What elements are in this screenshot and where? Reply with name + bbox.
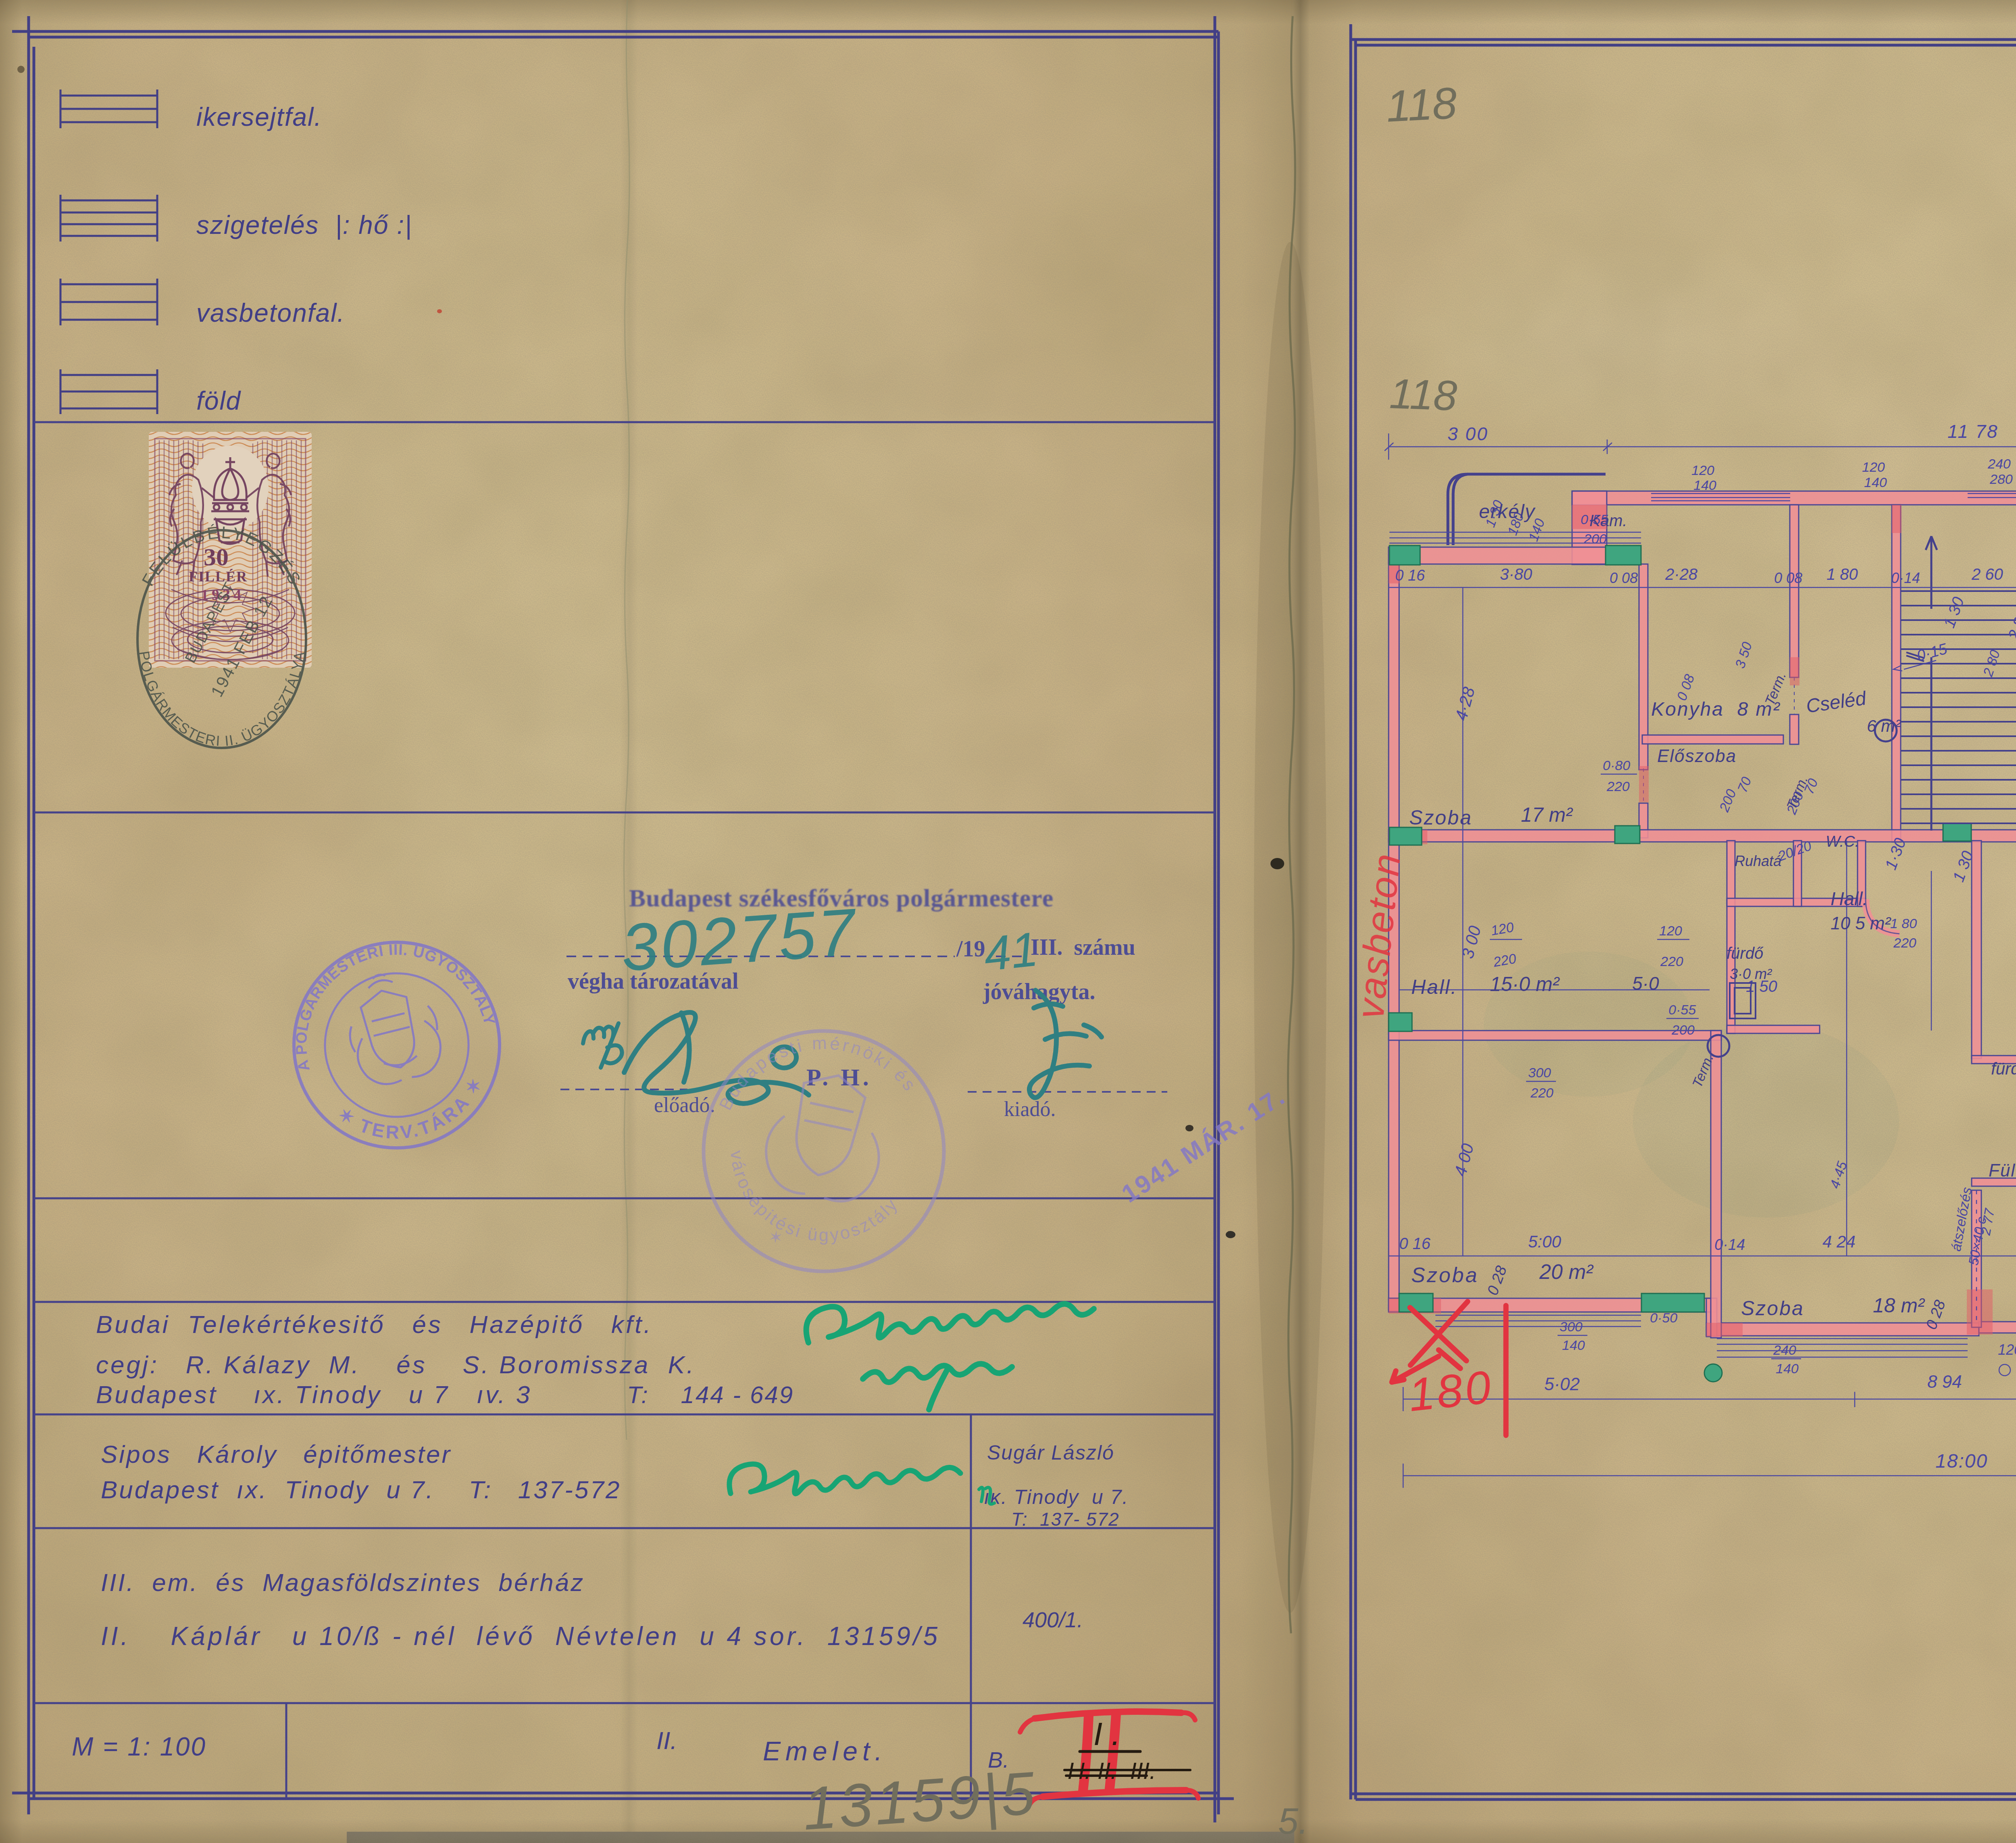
svg-text:Sugár László: Sugár László	[987, 1441, 1114, 1464]
svg-text:300: 300	[1560, 1319, 1583, 1334]
svg-text:M = 1: 100: M = 1: 100	[72, 1732, 206, 1761]
svg-text:140: 140	[1776, 1361, 1799, 1376]
svg-text:4 24: 4 24	[1822, 1232, 1856, 1251]
svg-text:140: 140	[1693, 477, 1716, 493]
svg-text:Szoba: Szoba	[1741, 1297, 1804, 1320]
svg-text:0 08: 0 08	[1610, 570, 1638, 586]
svg-text:kiadó.: kiadó.	[1004, 1097, 1056, 1120]
svg-text:0·55: 0·55	[1668, 1002, 1696, 1017]
svg-text:Szoba: Szoba	[1409, 806, 1472, 829]
svg-text:Sipos Károly épitőmester: Sipos Károly épitőmester	[101, 1440, 452, 1468]
svg-text:120: 120	[1691, 462, 1714, 478]
svg-text:200: 200	[1583, 531, 1607, 546]
svg-text:180: 180	[1406, 1361, 1495, 1421]
svg-text:300: 300	[1528, 1065, 1551, 1080]
svg-text:II.: II.	[656, 1726, 677, 1754]
svg-text:118: 118	[1385, 78, 1458, 131]
svg-text:II. Káplár u 10/ß - nél: II. Káplár u 10/ß - nél lévő Névtelen u …	[101, 1622, 940, 1651]
svg-text:120: 120	[1659, 923, 1682, 938]
svg-text:18:00: 18:00	[1935, 1450, 1988, 1472]
svg-text:280: 280	[1989, 471, 2013, 487]
svg-text:III. számu: III. számu	[1031, 935, 1135, 960]
svg-text:I .: I .	[1093, 1716, 1120, 1752]
svg-text:fürdő: fürdő	[1727, 944, 1764, 962]
svg-text:240: 240	[1987, 456, 2011, 471]
svg-text:fürdő: fürdő	[1991, 1059, 2016, 1078]
svg-text:III. em. és Magasföldszinte: III. em. és Magasföldszintes bérház	[101, 1568, 585, 1596]
svg-text:220: 220	[1893, 935, 1916, 950]
svg-text:200: 200	[1671, 1022, 1695, 1037]
svg-text:5·0: 5·0	[1632, 973, 1659, 994]
svg-text:erkély: erkély	[1479, 501, 1536, 522]
svg-text:5:00: 5:00	[1528, 1232, 1561, 1251]
svg-text:Budai Telekértékesitő és: Budai Telekértékesitő és Hazépitő kft.	[96, 1310, 653, 1338]
svg-text:140: 140	[1864, 475, 1887, 490]
svg-text:0 16: 0 16	[1395, 567, 1425, 584]
svg-text:3·80: 3·80	[1500, 565, 1532, 583]
svg-text:120: 120	[1998, 1341, 2016, 1358]
svg-text:41: 41	[981, 922, 1041, 981]
svg-text:ıĸ. Tinody u 7.: ıĸ. Tinody u 7.	[984, 1486, 1129, 1508]
svg-text:2·28: 2·28	[1665, 565, 1698, 583]
svg-text:Emelet.: Emelet.	[763, 1736, 887, 1766]
svg-text:5.: 5.	[1278, 1801, 1308, 1841]
svg-text:✶: ✶	[768, 1227, 784, 1247]
svg-text:0·14: 0·14	[1891, 570, 1920, 586]
svg-text:Előszoba: Előszoba	[1657, 746, 1737, 766]
svg-text:0 08: 0 08	[1774, 570, 1802, 586]
svg-text:10 5 m²: 10 5 m²	[1831, 913, 1891, 933]
svg-text:240: 240	[1773, 1342, 1796, 1358]
svg-text:5·02: 5·02	[1544, 1374, 1580, 1394]
svg-text:előadó.: előadó.	[654, 1093, 715, 1116]
svg-text:20 m²: 20 m²	[1539, 1260, 1594, 1283]
svg-text:120: 120	[1862, 459, 1885, 475]
svg-text:szigetelés |: hő :|: szigetelés |: hő :|	[196, 210, 412, 240]
svg-text:vasbetonfal.: vasbetonfal.	[196, 298, 345, 327]
svg-text:11 78: 11 78	[1947, 421, 1999, 442]
svg-text:T: 137- 572: T: 137- 572	[1011, 1509, 1120, 1530]
svg-text:140: 140	[1562, 1337, 1585, 1353]
svg-text:T: 144 - 649: T: 144 - 649	[627, 1381, 794, 1408]
svg-text:Hall.: Hall.	[1831, 888, 1868, 909]
svg-text:Budapest ıx. Tinody u 7: Budapest ıx. Tinody u 7 ıv. 3	[96, 1381, 532, 1408]
svg-text:18 m²: 18 m²	[1873, 1294, 1925, 1317]
svg-text:föld: föld	[196, 386, 242, 415]
svg-text:0·80: 0·80	[1603, 758, 1630, 773]
svg-text:Szoba: Szoba	[1411, 1263, 1479, 1287]
svg-text:118: 118	[1389, 370, 1458, 419]
svg-text:Konyha 8 m²: Konyha 8 m²	[1651, 698, 1781, 720]
svg-text:0·50: 0·50	[1650, 1310, 1677, 1325]
svg-text:Kam.: Kam.	[1589, 512, 1627, 529]
svg-text:/19: /19	[956, 936, 985, 961]
svg-text:2 60: 2 60	[1971, 565, 2003, 583]
svg-text:Fülke 6 m²: Fülke 6 m²	[1989, 1160, 2016, 1180]
svg-text:220: 220	[1530, 1085, 1554, 1100]
svg-text:ikersejtfal.: ikersejtfal.	[196, 102, 322, 131]
svg-text:15·0 m²: 15·0 m²	[1490, 973, 1560, 995]
svg-text:220: 220	[1660, 954, 1683, 969]
svg-text:3·0 m²: 3·0 m²	[1730, 966, 1772, 982]
svg-text:Hall.: Hall.	[1411, 976, 1458, 998]
svg-text:220: 220	[1606, 779, 1630, 794]
svg-text:W.C.: W.C.	[1826, 833, 1859, 850]
svg-text:8 94: 8 94	[1927, 1372, 1962, 1391]
svg-text:0 16: 0 16	[1399, 1235, 1431, 1252]
svg-text:1 80: 1 80	[1890, 916, 1917, 931]
svg-text:3 00: 3 00	[1447, 423, 1489, 444]
svg-text:17 m²: 17 m²	[1521, 804, 1573, 826]
svg-text:Budapest ıx. Tinody u 7.: Budapest ıx. Tinody u 7. T: 137-572	[101, 1476, 621, 1504]
svg-text:Ruhatá: Ruhatá	[1735, 853, 1781, 869]
svg-text:cegj: R. Kálazy M. és: cegj: R. Kálazy M. és S. Boromissza K.	[96, 1351, 696, 1379]
svg-text:400/1.: 400/1.	[1023, 1608, 1083, 1632]
svg-text:0·14: 0·14	[1714, 1236, 1745, 1253]
svg-text:1 80: 1 80	[1826, 565, 1858, 583]
